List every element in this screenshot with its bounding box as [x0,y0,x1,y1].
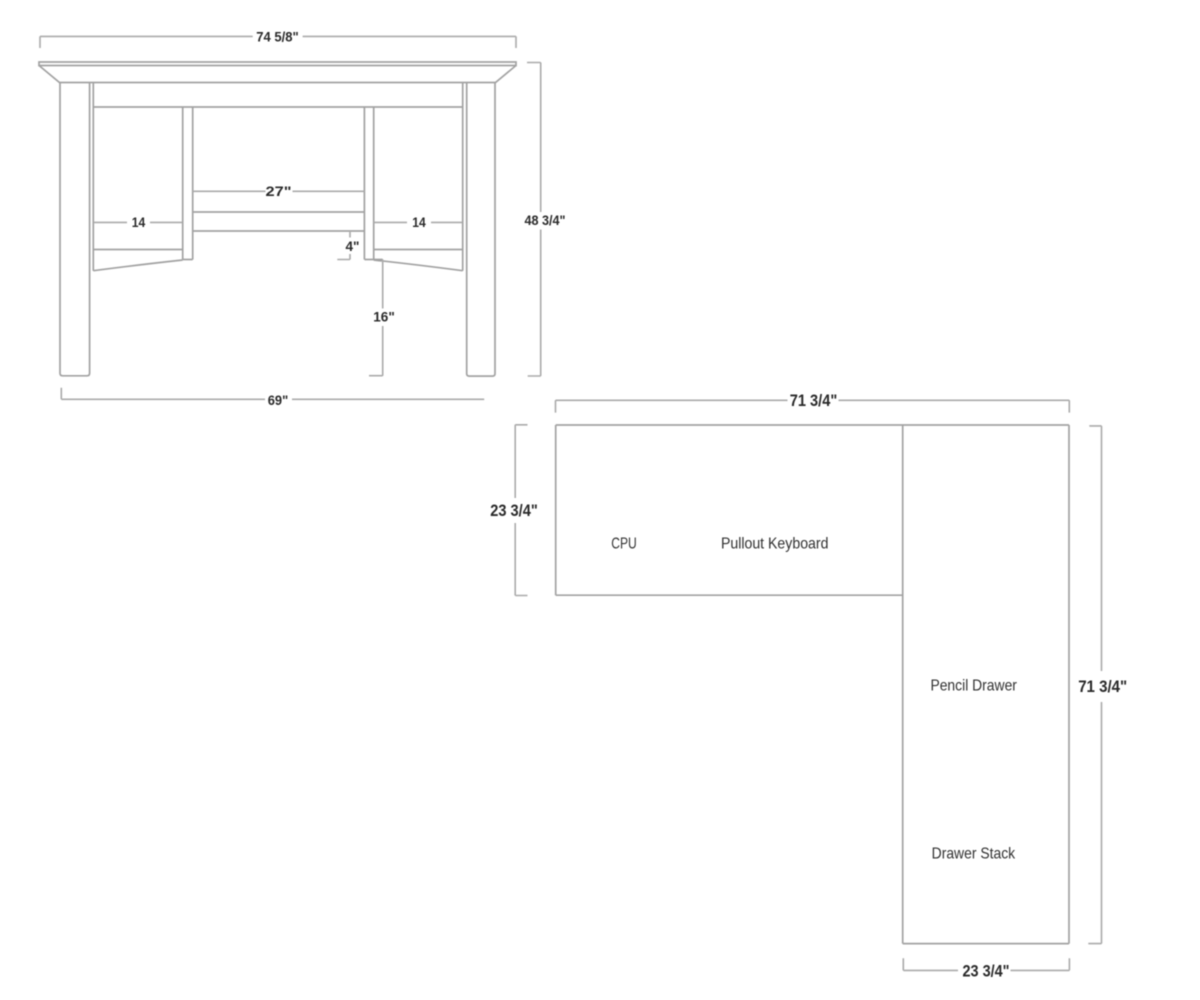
svg-text:71 3/4": 71 3/4" [790,391,838,410]
svg-text:71 3/4": 71 3/4" [1078,677,1127,696]
svg-text:27": 27" [266,184,292,199]
svg-text:CPU: CPU [611,535,637,552]
svg-text:Pullout Keyboard: Pullout Keyboard [721,535,829,552]
svg-text:14: 14 [132,215,146,230]
svg-text:16": 16" [373,310,395,325]
svg-text:Drawer Stack: Drawer Stack [932,845,1016,862]
svg-text:48 3/4": 48 3/4" [525,213,566,228]
svg-text:4": 4" [346,239,360,254]
svg-text:23 3/4": 23 3/4" [490,501,538,520]
svg-text:14: 14 [412,215,426,230]
svg-text:69": 69" [268,393,289,408]
svg-text:74 5/8": 74 5/8" [256,29,299,44]
svg-text:23 3/4": 23 3/4" [963,961,1010,980]
svg-text:Pencil Drawer: Pencil Drawer [930,677,1017,694]
